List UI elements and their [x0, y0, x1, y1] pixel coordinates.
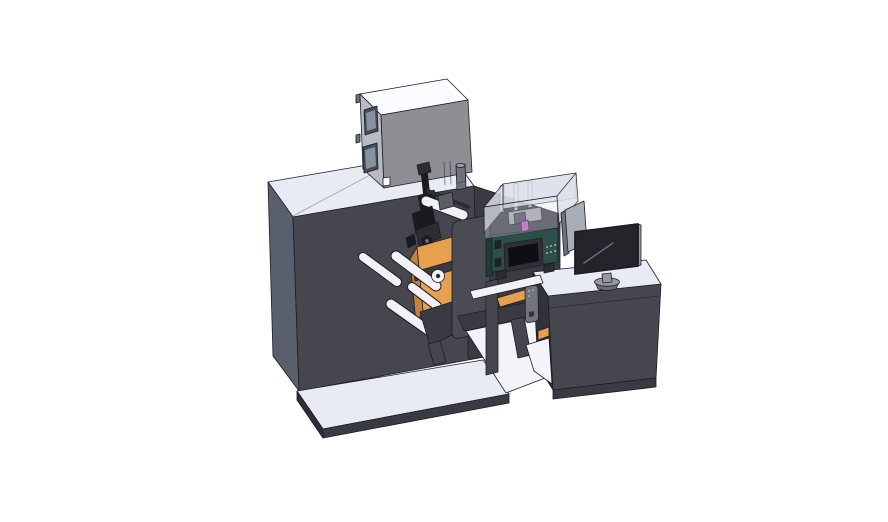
enclosure-hinge-upper — [356, 94, 360, 103]
machine-render: Main machine cabinet Machine base plate … — [0, 0, 888, 522]
enclosure-badge — [383, 177, 390, 186]
enclosure-window-upper-glass — [366, 110, 376, 131]
roller-end-hub-center — [436, 274, 440, 278]
bracket-slot — [529, 311, 534, 317]
scene: Main machine cabinet Machine base plate … — [0, 0, 888, 522]
enclosure-hinge-lower — [356, 134, 360, 143]
cad-render-stage: Main machine cabinet Machine base plate … — [0, 0, 888, 522]
inkjet-foot-right — [544, 263, 554, 273]
enclosure-window-lower-glass — [365, 147, 376, 169]
monitor-screen — [575, 224, 638, 274]
inkjet-tab-lower — [495, 258, 501, 267]
inkjet-foot-left — [496, 270, 506, 280]
beacon-cylinder-cap — [456, 164, 465, 168]
beacon-cylinder-body — [456, 164, 466, 190]
bridge-bracket — [525, 285, 539, 322]
mechanism-hub-center — [425, 239, 429, 243]
operator-desk: Operator desk — [526, 260, 661, 399]
monitor-neck — [602, 273, 612, 283]
top-enclosure-box: Top enclosure box — [356, 79, 472, 190]
desk-front-face — [548, 284, 661, 390]
inkjet-tab-upper — [495, 240, 501, 249]
